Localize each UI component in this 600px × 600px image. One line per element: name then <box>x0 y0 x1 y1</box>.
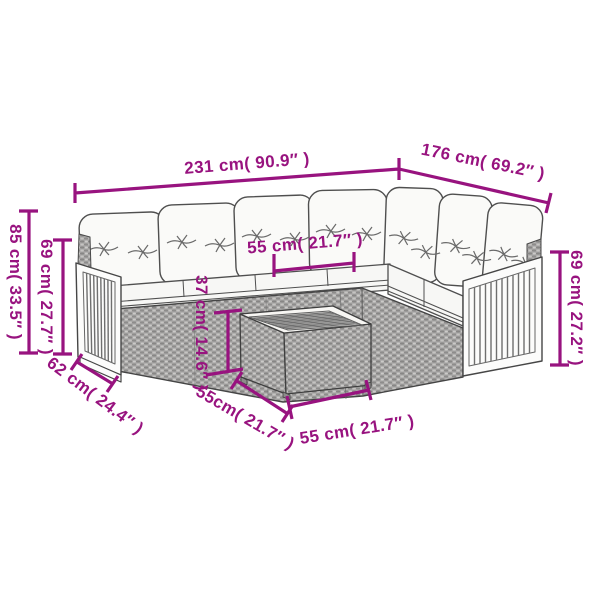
furniture-illustration <box>0 0 600 600</box>
dim-label-table-height: 37 cm( 14.6″ ) <box>191 275 211 391</box>
dim-label-arm-height-right: 69 cm( 27.2″ ) <box>566 250 586 366</box>
product-dimension-diagram: 231 cm( 90.9″ ) 176 cm( 69.2″ ) 85 cm( 3… <box>0 0 600 600</box>
dim-label-back-height: 85 cm( 33.5″ ) <box>5 224 25 340</box>
dim-label-arm-height-left: 69 cm( 27.7″ ) <box>36 239 56 355</box>
